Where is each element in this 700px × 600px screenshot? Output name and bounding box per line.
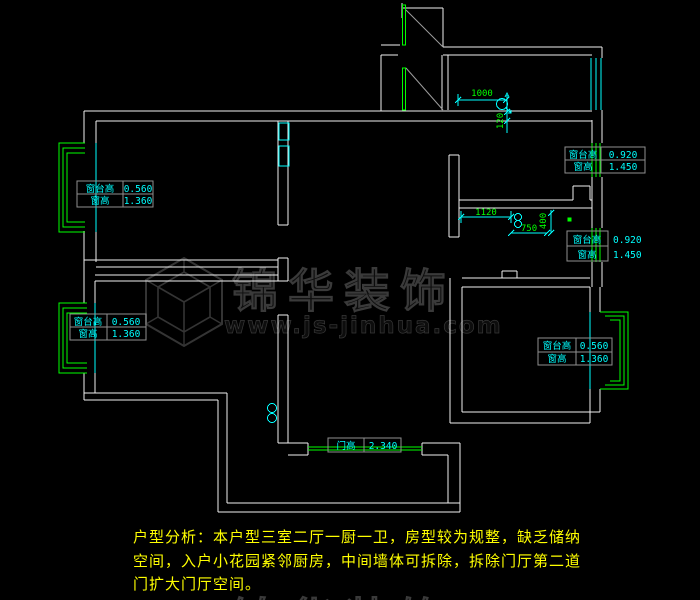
dim-text-400: 400 bbox=[539, 213, 549, 229]
table-cell-value: 1.450 bbox=[613, 250, 642, 261]
table-cell-label: 窗高 bbox=[577, 249, 596, 261]
watermark: 锦华装饰 www.js-jinhua.com 锦华装饰 bbox=[146, 258, 503, 600]
table-cell-label: 窗台高 bbox=[543, 340, 572, 352]
dim-text-750: 750 bbox=[521, 224, 537, 234]
plumbing-symbol-icon bbox=[515, 214, 522, 221]
dim-text-120: 120 bbox=[496, 113, 506, 129]
watermark-brand-text-tiled: 锦华装饰 bbox=[232, 593, 456, 600]
table-cell-label: 窗台高 bbox=[573, 234, 602, 246]
analysis-line-1: 户型分析：本户型三室二厅一厨一卫，房型较为规整，缺乏储纳 bbox=[133, 526, 581, 547]
cad-viewport: 锦华装饰 www.js-jinhua.com 锦华装饰 bbox=[0, 0, 700, 600]
table-cell-label: 窗高 bbox=[90, 195, 109, 207]
table-cell-value: 0.560 bbox=[124, 184, 153, 195]
wall-lines bbox=[84, 3, 602, 512]
floorplan-canvas: 锦华装饰 www.js-jinhua.com 锦华装饰 bbox=[0, 0, 700, 600]
table-cell-value: 1.360 bbox=[124, 196, 153, 207]
door-swing-line bbox=[406, 10, 443, 47]
door-hinge-symbol-icon bbox=[268, 404, 277, 413]
table-cell-label: 窗台高 bbox=[569, 149, 598, 161]
table-cell-label: 门高 bbox=[336, 440, 355, 452]
fixture-dot bbox=[568, 218, 571, 221]
window-left-upper bbox=[59, 143, 85, 232]
table-cell-label: 窗台高 bbox=[74, 316, 103, 328]
table-cell-value: 0.560 bbox=[112, 317, 141, 328]
glass-and-dimension-lines bbox=[95, 58, 601, 423]
table-cell-value: 1.360 bbox=[580, 354, 609, 365]
table-door-height: 门高 2.340 bbox=[328, 438, 401, 452]
analysis-line-3: 门扩大门厅空间。 bbox=[133, 573, 261, 594]
door-hinge-symbol-icon bbox=[268, 414, 277, 423]
glass-line-top-right bbox=[591, 58, 601, 110]
entry-door-leaf bbox=[403, 68, 406, 110]
analysis-line-2: 空间，入户小花园紧邻厨房，中间墙体可拆除，拆除门厅第二道 bbox=[133, 550, 581, 571]
table-window-bottom-left: 窗台高 0.560 窗高 1.360 bbox=[70, 314, 146, 340]
table-window-bottom-right: 窗台高 0.560 窗高 1.360 bbox=[538, 338, 612, 365]
brand-logo-icon bbox=[146, 258, 222, 346]
door-threshold-living bbox=[308, 447, 422, 450]
table-window-top-left: 窗台高 0.560 窗高 1.360 bbox=[77, 181, 153, 207]
table-cell-value: 0.560 bbox=[580, 341, 609, 352]
watermark-url-text: www.js-jinhua.com bbox=[224, 313, 503, 339]
table-cell-value: 0.920 bbox=[613, 235, 642, 246]
table-cell-value: 1.360 bbox=[112, 329, 141, 340]
dim-text-1000: 1000 bbox=[471, 89, 493, 99]
table-cell-label: 窗高 bbox=[78, 328, 97, 340]
table-window-right-mid: 窗台高 0.920 窗高 1.450 bbox=[567, 231, 642, 261]
table-cell-label: 窗台高 bbox=[86, 183, 115, 195]
door-swing-line bbox=[406, 68, 443, 110]
dim-text-1120: 1120 bbox=[475, 208, 497, 218]
entry-door-swings bbox=[406, 10, 443, 110]
table-cell-label: 窗高 bbox=[573, 161, 592, 173]
table-cell-label: 窗高 bbox=[547, 353, 566, 365]
entry-door-leaf bbox=[403, 5, 406, 45]
table-cell-value: 1.450 bbox=[609, 162, 638, 173]
table-cell-value: 0.920 bbox=[609, 150, 638, 161]
watermark-brand-text: 锦华装饰 bbox=[232, 264, 456, 318]
table-cell-value: 2.340 bbox=[369, 441, 398, 452]
table-window-right-upper: 窗台高 0.920 窗高 1.450 bbox=[565, 147, 645, 173]
